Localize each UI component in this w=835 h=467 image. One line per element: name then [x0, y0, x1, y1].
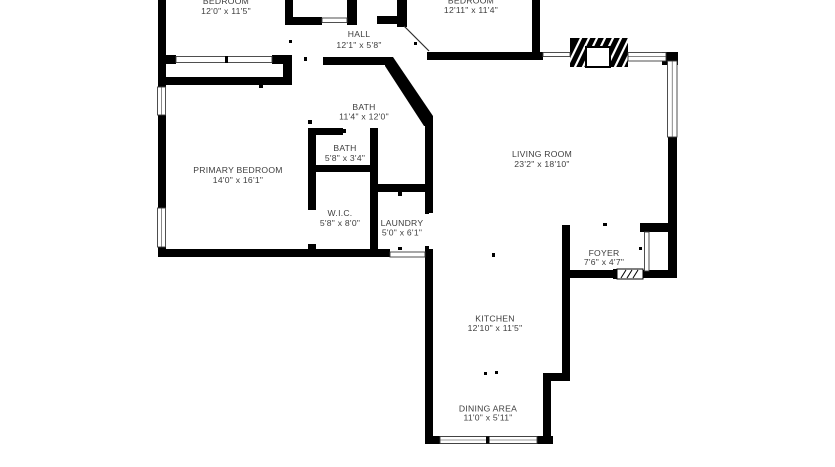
wall-segment: [563, 270, 617, 278]
room-label-hall: HALL: [348, 29, 371, 39]
firebox: [586, 47, 610, 67]
room-label-bath-main: BATH: [352, 102, 375, 112]
room-label-wic: W.I.C.: [328, 208, 353, 218]
window-divider: [486, 437, 490, 444]
floorplan-drawing: BEDROOM 12'0" x 11'5" BEDROOM 12'11" x 1…: [0, 0, 835, 467]
dimension-tick: [429, 122, 432, 125]
dimension-tick: [484, 372, 487, 375]
wall-segment: [158, 77, 292, 85]
dimension-tick: [158, 166, 162, 170]
wall-segment: [543, 373, 551, 444]
wall-segment: [562, 225, 570, 377]
entry-door-icon: [617, 269, 643, 279]
wall-segment: [370, 128, 378, 257]
hall-door-line: [322, 18, 347, 23]
wall-segment: [427, 52, 543, 60]
wall-segment: [158, 249, 390, 257]
dimension-tick: [304, 57, 307, 61]
room-dims-bath-small: 5'8" x 3'4": [325, 153, 365, 163]
dimension-tick: [495, 371, 498, 374]
room-dims-bedroom-right: 12'11" x 11'4": [444, 5, 498, 15]
room-dims-laundry: 5'0" x 6'1": [382, 228, 422, 238]
room-dims-primary-bedroom: 14'0" x 16'1": [213, 175, 263, 185]
half-wall-line: [543, 53, 570, 57]
wall-segment: [308, 165, 316, 210]
room-labels: BEDROOM 12'0" x 11'5" BEDROOM 12'11" x 1…: [193, 0, 624, 423]
closet-door-line: [645, 232, 650, 271]
dimension-tick: [425, 211, 429, 214]
wall-segment: [532, 0, 540, 53]
wall-segment: [370, 184, 430, 192]
dimension-tick: [563, 312, 567, 316]
wall-segment: [323, 57, 385, 65]
wall-segment: [425, 116, 433, 213]
room-dims-kitchen: 12'10" x 11'5": [468, 323, 523, 333]
dimension-tick: [289, 40, 292, 43]
wall-segment: [425, 249, 433, 444]
dimension-tick: [414, 42, 417, 45]
dimension-tick: [308, 120, 312, 124]
room-dims-dining-area: 11'0" x 5'11": [463, 413, 512, 423]
dimension-tick: [639, 247, 642, 250]
dimension-tick: [603, 223, 607, 226]
fireplace-icon: [566, 36, 638, 69]
floorplan: BEDROOM 12'0" x 11'5" BEDROOM 12'11" x 1…: [0, 0, 835, 467]
dimension-tick: [398, 192, 402, 196]
wall-segment: [158, 0, 166, 87]
wall-segment: [285, 17, 322, 25]
room-label-bath-small: BATH: [333, 143, 356, 153]
room-dims-wic: 5'8" x 8'0": [320, 218, 360, 228]
dimension-tick: [398, 247, 402, 250]
room-dims-hall: 12'1" x 5'8": [336, 40, 381, 50]
dimension-tick: [225, 56, 228, 63]
room-label-primary-bedroom: PRIMARY BEDROOM: [193, 165, 282, 175]
laundry-door-line: [390, 252, 425, 257]
dimension-tick: [492, 253, 495, 257]
door-swing-leaf: [404, 26, 429, 51]
wall-segment: [164, 55, 176, 64]
wall-segment: [158, 115, 166, 208]
room-dims-living-room: 23'2" x 18'10": [514, 159, 569, 169]
closet-slider-door: [176, 57, 272, 63]
wall-segment: [640, 223, 677, 232]
dimension-tick: [342, 129, 346, 133]
wall-segment: [668, 137, 677, 224]
room-label-living-room: LIVING ROOM: [512, 149, 572, 159]
room-dims-bath-main: 11'4" x 12'0": [339, 112, 389, 122]
wall-segment: [308, 165, 376, 172]
room-label-laundry: LAUNDRY: [381, 218, 424, 228]
room-dims-foyer: 7'6" x 4'7": [584, 257, 624, 267]
wall-diagonal: [385, 57, 433, 126]
wall-segment: [397, 0, 407, 27]
dimension-tick: [428, 132, 431, 135]
room-dims-bedroom-left: 12'0" x 11'5": [201, 6, 251, 16]
wall-segment: [347, 0, 357, 25]
dimension-tick: [259, 84, 263, 88]
room-label-kitchen: KITCHEN: [475, 314, 514, 324]
dimension-tick: [425, 246, 429, 249]
